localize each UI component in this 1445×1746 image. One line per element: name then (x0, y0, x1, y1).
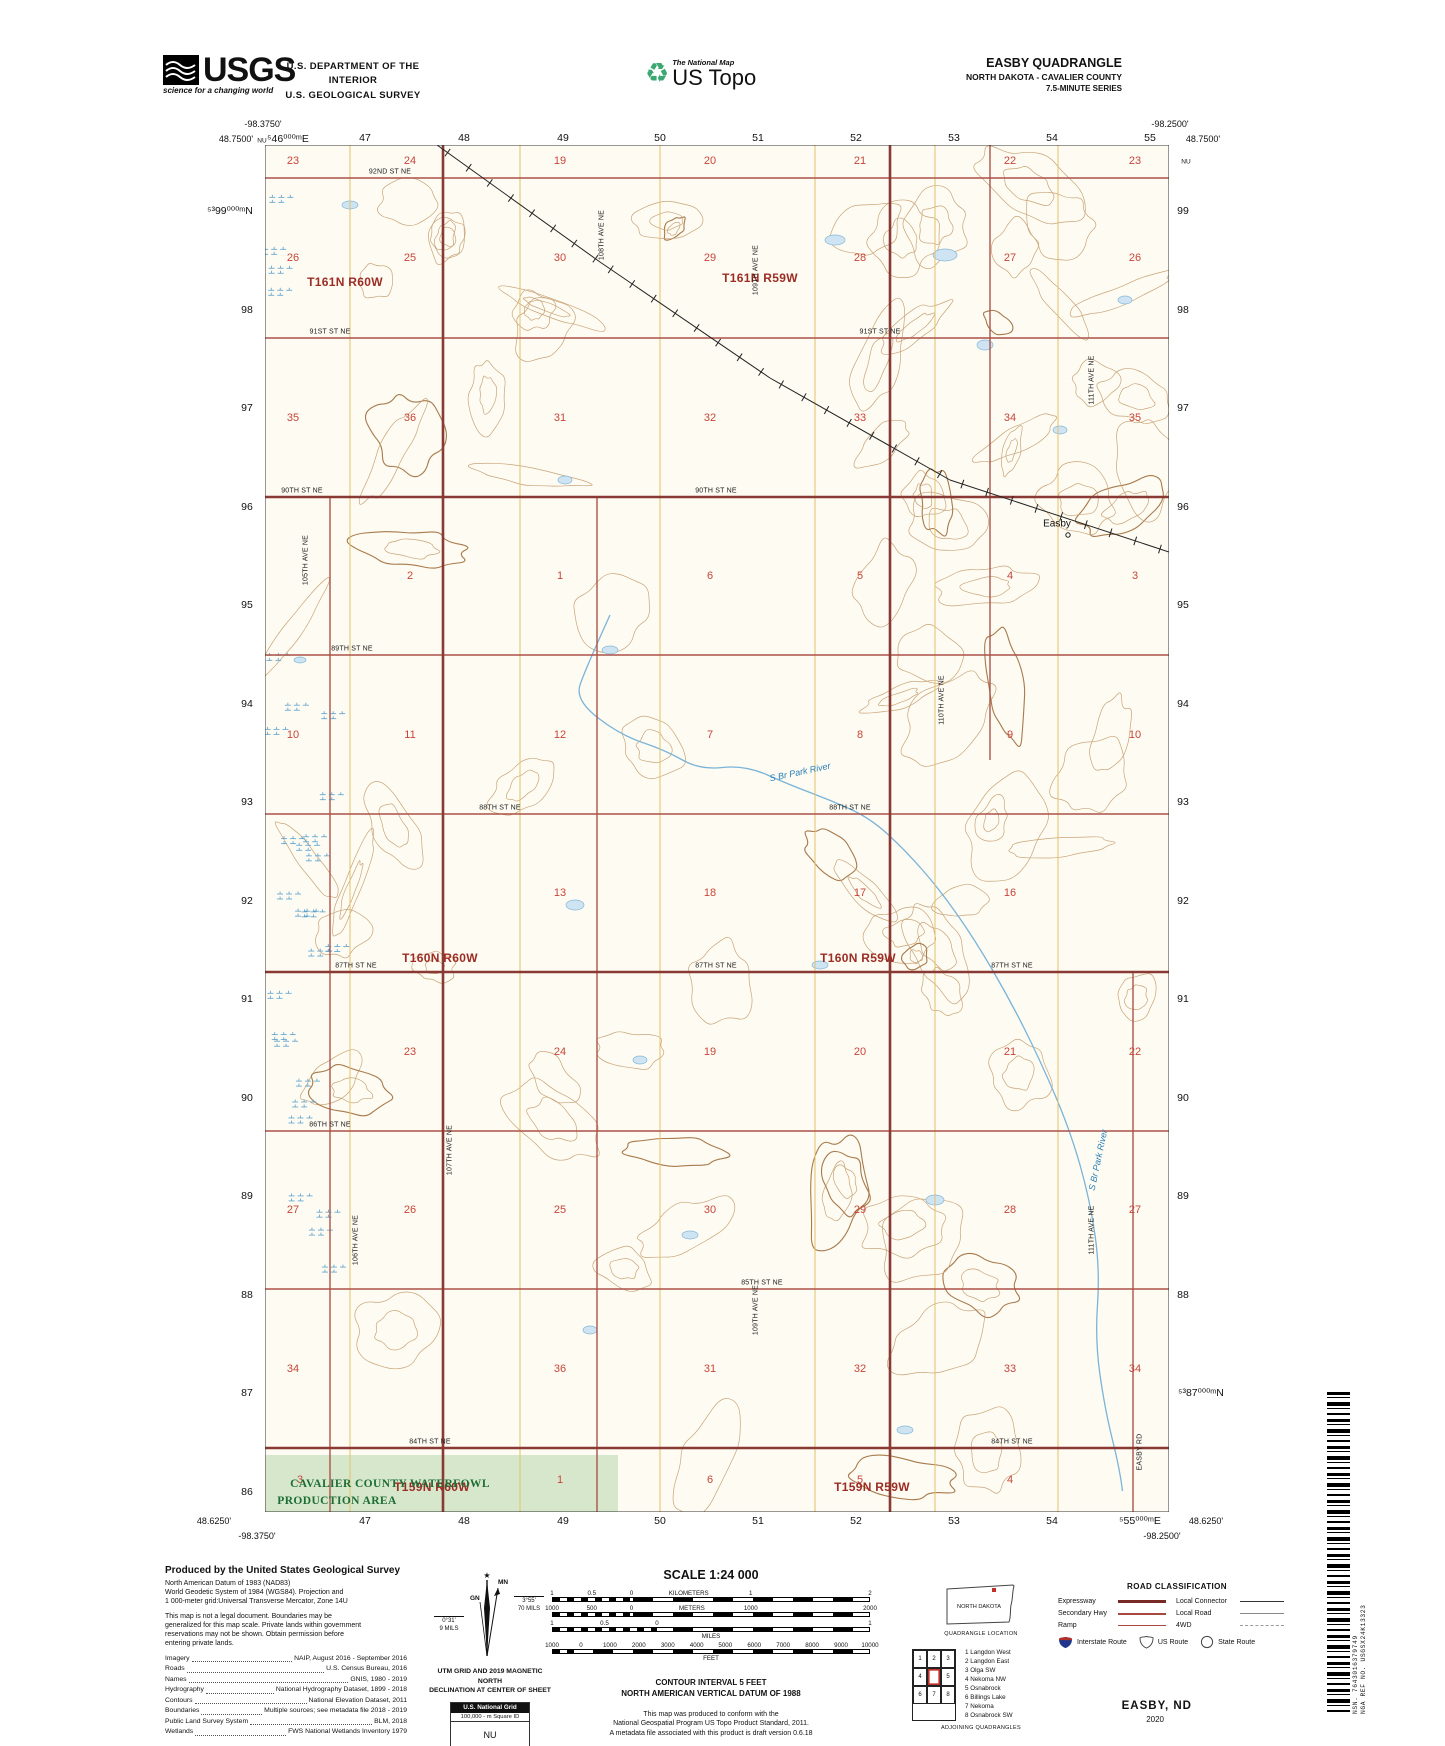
standard-conformance-note: This map was produced to conform with th… (552, 1710, 870, 1738)
map-sheet: USGS science for a changing world U.S. D… (0, 0, 1445, 1746)
map-label: 50 (654, 132, 666, 144)
barcode-text: NSN. 7643016379749 NGA REF NO. USGSX24K1… (1352, 1392, 1367, 1714)
map-label: 48 (458, 132, 470, 144)
map-label: 53 (948, 1515, 960, 1527)
credit-row: NamesGNIS, 1980 - 2019 (165, 1675, 407, 1686)
ustopo-label: US Topo (672, 67, 756, 89)
adjoining-quad-cell: 3 (941, 1650, 955, 1668)
map-label: ⁵46⁰⁰⁰ᵐE (267, 133, 309, 145)
map-label: 93 (241, 796, 253, 808)
data-sources-list: ImageryNAIP, August 2016 - September 201… (165, 1654, 407, 1738)
map-label: -98.3750' (244, 119, 281, 129)
map-label: 88 (241, 1289, 253, 1301)
quadrangle-location-block: NORTH DAKOTA QUADRANGLE LOCATION 1234567… (912, 1580, 1050, 1731)
adjoining-quad-grid: 12345678 (912, 1649, 956, 1721)
map-label: 93 (1177, 796, 1189, 808)
map-label: ⁵³99⁰⁰⁰ᵐN (207, 205, 253, 217)
road-classification-legend: ROAD CLASSIFICATION ExpresswayLocal Conn… (1058, 1582, 1296, 1649)
map-label: 54 (1046, 132, 1058, 144)
map-label: 89 (241, 1190, 253, 1202)
map-label: 94 (1177, 698, 1189, 710)
recycle-icon: ♻ (645, 60, 669, 87)
credit-row: ContoursNational Elevation Dataset, 2011 (165, 1696, 407, 1707)
scale-bar: 10005000METERS10002000 (552, 1605, 870, 1620)
usgs-wave-icon (163, 55, 199, 85)
true-north-star: ★ (483, 1571, 490, 1580)
north-dakota-outline: NORTH DAKOTA (943, 1580, 1019, 1628)
map-label: 49 (557, 1515, 569, 1527)
barcode (1327, 1392, 1350, 1714)
map-label: 47 (359, 1515, 371, 1527)
ustopo-logo: ♻ The National Map US Topo (645, 58, 756, 89)
usng-square-id: NU (451, 1722, 529, 1746)
adjoining-quad-cell: 8 (941, 1686, 955, 1704)
adjoining-quad-name: 8 Osnabrock SW (965, 1712, 1013, 1721)
quad-name: EASBY QUADRANGLE (880, 56, 1122, 70)
adjoining-quad-name: 6 Billings Lake (965, 1694, 1013, 1703)
publication-block: EASBY, ND 2020 (1050, 1700, 1192, 1724)
adjoining-quad-cell: 5 (941, 1668, 955, 1686)
legal-paragraph: This map is not a legal document. Bounda… (165, 1612, 407, 1649)
adjoining-quad-name: 4 Nekoma NW (965, 1676, 1013, 1685)
credit-row: RoadsU.S. Census Bureau, 2016 (165, 1664, 407, 1675)
declination-diagram: ★ MN GN 3°55'70 MILS 0°31'9 MILS UTM GRI… (428, 1568, 552, 1746)
quad-series: 7.5-MINUTE SERIES (880, 84, 1122, 93)
map-label: 55 (1144, 132, 1156, 144)
interstate-shield-icon (1058, 1635, 1073, 1649)
scale-bar: 10.50KILOMETERS12 (552, 1590, 870, 1605)
map-label: 49 (557, 132, 569, 144)
map-label: 96 (1177, 501, 1189, 513)
map-label: 54 (1046, 1515, 1058, 1527)
map-label: 99 (1177, 205, 1189, 217)
map-label: 86 (241, 1486, 253, 1498)
production-credits: Produced by the United States Geological… (165, 1565, 407, 1738)
map-label: ⁵55⁰⁰⁰ᵐE (1119, 1515, 1161, 1527)
map-label: 95 (1177, 599, 1189, 611)
us-route-label: US Route (1158, 1639, 1188, 1646)
usng-box: U.S. National Grid 100,000 - m Square ID… (450, 1702, 530, 1746)
credit-row: ImageryNAIP, August 2016 - September 201… (165, 1654, 407, 1665)
datum-paragraph: North American Datum of 1983 (NAD83) Wor… (165, 1579, 407, 1607)
map-label: 48.7500' (1186, 134, 1220, 144)
map-label: 89 (1177, 1190, 1189, 1202)
nsn-number: NSN. 7643016379749 (1352, 1392, 1359, 1714)
interstate-route-label: Interstate Route (1077, 1639, 1127, 1646)
grid-declination-value: 0°31'9 MILS (434, 1616, 464, 1634)
declination-arrows: ★ MN GN (428, 1568, 552, 1660)
quad-county: NORTH DAKOTA - CAVALIER COUNTY (880, 72, 1122, 82)
map-label: 91 (1177, 993, 1189, 1005)
adjoining-quad-cell: 2 (927, 1650, 941, 1668)
adjoining-quad-cell: 4 (913, 1668, 927, 1686)
svg-text:NORTH DAKOTA: NORTH DAKOTA (957, 1604, 1001, 1610)
magnetic-declination-value: 3°55'70 MILS (514, 1596, 544, 1614)
nga-ref-number: NGA REF NO. USGSX24K13323 (1360, 1392, 1367, 1714)
map-label: 52 (850, 1515, 862, 1527)
topo-map-canvas (265, 145, 1169, 1512)
usng-square-label: 100,000 - m Square ID (451, 1713, 529, 1722)
scale-bar: 1000010002000300040005000600070008000900… (552, 1642, 870, 1664)
adjoining-caption: ADJOINING QUADRANGLES (912, 1725, 1050, 1731)
map-label: 53 (948, 132, 960, 144)
map-label: 94 (241, 698, 253, 710)
credit-row: Public Land Survey SystemBLM, 2018 (165, 1717, 407, 1728)
produced-title: Produced by the United States Geological… (165, 1565, 407, 1576)
credit-row: BoundariesMultiple sources; see metadata… (165, 1706, 407, 1717)
adjoining-quad-name: 5 Osnabrock (965, 1685, 1013, 1694)
declination-caption: UTM GRID AND 2019 MAGNETIC NORTH DECLINA… (428, 1667, 552, 1696)
map-label: -98.2500' (1143, 1531, 1180, 1541)
state-route-label: State Route (1218, 1639, 1255, 1646)
map-label: 50 (654, 1515, 666, 1527)
usng-title: U.S. National Grid (451, 1703, 529, 1713)
this-quad-cell (927, 1668, 941, 1686)
map-label: 88 (1177, 1289, 1189, 1301)
map-label: 52 (850, 132, 862, 144)
map-label: 51 (752, 1515, 764, 1527)
scale-bar: 10.501MILES (552, 1620, 870, 1642)
map-label: 48.6250' (1189, 1516, 1223, 1526)
map-label: -98.2500' (1151, 119, 1188, 129)
department-heading: U.S. DEPARTMENT OF THE INTERIOR U.S. GEO… (268, 60, 438, 103)
road-class-row: Ramp4WD (1058, 1622, 1296, 1629)
adjoining-quad-cell: 1 (913, 1650, 927, 1668)
credit-row: HydrographyNational Hydrography Dataset,… (165, 1685, 407, 1696)
map-label: -98.3750' (238, 1531, 275, 1541)
credit-row: WetlandsFWS National Wetlands Inventory … (165, 1727, 407, 1738)
map-label: 95 (241, 599, 253, 611)
vertical-datum-note: NORTH AMERICAN VERTICAL DATUM OF 1988 (552, 1689, 870, 1698)
scale-title: SCALE 1:24 000 (552, 1568, 870, 1582)
map-label: 47 (359, 132, 371, 144)
dept-line1: U.S. DEPARTMENT OF THE INTERIOR (268, 60, 438, 89)
svg-text:GN: GN (470, 1595, 480, 1602)
adjoining-quad-name: 3 Olga SW (965, 1667, 1013, 1676)
map-label: 98 (241, 304, 253, 316)
quadrangle-title: EASBY QUADRANGLE NORTH DAKOTA - CAVALIER… (880, 56, 1122, 93)
svg-text:MN: MN (498, 1579, 508, 1586)
map-label: 96 (241, 501, 253, 513)
map-label: ⁵³87⁰⁰⁰ᵐN (1178, 1387, 1224, 1399)
map-label: 92 (241, 895, 253, 907)
map-label: 92 (1177, 895, 1189, 907)
map-label: 87 (241, 1387, 253, 1399)
road-class-row: ExpresswayLocal Connector (1058, 1598, 1296, 1605)
road-class-row: Secondary HwyLocal Road (1058, 1610, 1296, 1617)
adjoining-quad-cell: 7 (927, 1686, 941, 1704)
map-label: 48 (458, 1515, 470, 1527)
adjoining-quad-names: 1 Langdon West2 Langdon East3 Olga SW4 N… (965, 1649, 1013, 1721)
adjoining-quad-name: 1 Langdon West (965, 1649, 1013, 1658)
state-route-circle-icon (1200, 1635, 1214, 1649)
quad-location-caption: QUADRANGLE LOCATION (912, 1631, 1050, 1637)
map-label: 51 (752, 132, 764, 144)
map-label: 90 (1177, 1092, 1189, 1104)
road-class-title: ROAD CLASSIFICATION (1058, 1582, 1296, 1591)
sheet-year: 2020 (1050, 1715, 1164, 1724)
map-label: NU (257, 138, 266, 145)
map-label: 98 (1177, 304, 1189, 316)
adjoining-quad-name: 2 Langdon East (965, 1658, 1013, 1667)
adjoining-quad-cell: 6 (913, 1686, 927, 1704)
contour-interval-note: CONTOUR INTERVAL 5 FEET (552, 1678, 870, 1687)
us-route-shield-icon (1139, 1635, 1154, 1649)
map-label: 97 (1177, 402, 1189, 414)
map-label: NU (1181, 159, 1190, 166)
map-label: 91 (241, 993, 253, 1005)
quad-location-marker (992, 1588, 996, 1592)
scale-block: SCALE 1:24 000 10.50KILOMETERS1210005000… (552, 1568, 870, 1738)
map-label: 90 (241, 1092, 253, 1104)
scale-bars: 10.50KILOMETERS1210005000METERS100020001… (552, 1590, 870, 1664)
map-label: 97 (241, 402, 253, 414)
adjoining-quad-name: 7 Nekoma (965, 1703, 1013, 1712)
dept-line2: U.S. GEOLOGICAL SURVEY (268, 89, 438, 103)
map-label: 48.7500' (219, 134, 253, 144)
sheet-name: EASBY, ND (1050, 1700, 1192, 1712)
map-label: 48.6250' (197, 1516, 231, 1526)
